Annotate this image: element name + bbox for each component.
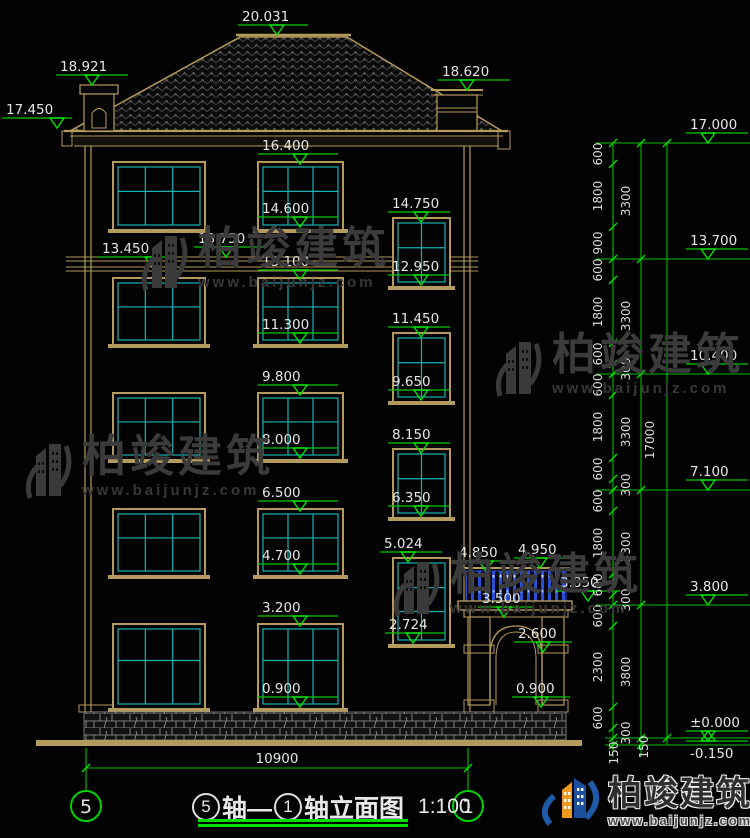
roof xyxy=(62,35,510,149)
level-marker-label: 2.724 xyxy=(389,617,428,633)
level-marker: 18.921 xyxy=(56,59,128,85)
level-marker-label: 6.500 xyxy=(262,485,301,501)
window xyxy=(388,333,455,405)
bottom-dimension: 10900 xyxy=(256,751,299,767)
level-marker: 9.800 xyxy=(258,369,338,395)
window xyxy=(108,624,210,712)
level-marker-label: 5.024 xyxy=(384,536,423,552)
dimension-label: 3800 xyxy=(619,657,633,688)
level-marker-label: 11.450 xyxy=(392,311,439,327)
level-marker: ±0.000 xyxy=(686,715,748,741)
window xyxy=(253,509,348,579)
level-marker: 17.000 xyxy=(686,117,748,143)
level-marker-label: 16.400 xyxy=(262,138,309,154)
level-marker-label: 4.700 xyxy=(262,548,301,564)
dimension-label: 1800 xyxy=(591,297,605,328)
level-marker-label: 12.950 xyxy=(392,259,439,275)
level-marker-label: 3.500 xyxy=(482,591,521,607)
window xyxy=(253,162,348,233)
dimension-label: 600 xyxy=(591,574,605,597)
dimension-label: 600 xyxy=(591,458,605,481)
level-marker: -0.150 xyxy=(686,731,748,762)
ground-line xyxy=(36,740,582,746)
window xyxy=(253,393,348,463)
title-underline-1 xyxy=(198,819,408,822)
level-marker-label: 2.600 xyxy=(518,626,557,642)
roof-dormer-block xyxy=(431,90,483,131)
dimension-label: 600 xyxy=(591,605,605,628)
level-marker-label: 13.700 xyxy=(690,233,737,249)
dimension-label: 600 xyxy=(591,259,605,282)
level-marker-label: 18.620 xyxy=(442,64,489,80)
dimension-label: 1800 xyxy=(591,412,605,443)
level-marker-label: -0.150 xyxy=(690,746,734,762)
level-marker-label: 13.750 xyxy=(198,231,245,247)
axis-bubble-left: 5 xyxy=(71,791,101,821)
level-marker: 0.900 xyxy=(512,681,570,707)
level-marker: 17.450 xyxy=(2,102,72,128)
level-marker-label: 3.800 xyxy=(690,579,729,595)
level-marker: 13.450 xyxy=(98,241,170,267)
level-marker: 10.400 xyxy=(686,348,748,374)
window xyxy=(388,218,455,290)
brand-logo-icon xyxy=(540,772,602,832)
dimension-label: 600 xyxy=(591,707,605,730)
elevation-drawing-canvas: 10900 5 1 20.03118.92117.45018.62016.400… xyxy=(0,0,750,838)
window xyxy=(108,393,210,463)
level-marker: 7.100 xyxy=(686,464,748,490)
dimension-label: 3300 xyxy=(619,417,633,448)
window xyxy=(388,558,455,648)
level-marker: 20.031 xyxy=(238,9,308,35)
level-marker-label: 9.650 xyxy=(392,374,431,390)
dimension-label: 2300 xyxy=(591,652,605,683)
stone-base xyxy=(84,712,566,740)
dimension-label: 17000 xyxy=(643,421,657,459)
dimension-label: 300 xyxy=(619,589,633,612)
level-marker: 3.200 xyxy=(258,600,338,626)
level-marker-label: ±0.000 xyxy=(690,715,740,731)
chimney xyxy=(80,85,118,131)
dimension-label: 300 xyxy=(619,358,633,381)
level-marker-label: 9.800 xyxy=(262,369,301,385)
dimension-labels: 6001800900600180060060018006006001800600… xyxy=(591,143,657,765)
level-marker-label: 4.850 xyxy=(459,545,498,561)
level-marker-label: 8.150 xyxy=(392,427,431,443)
brand-url: www.baijunjz.com xyxy=(608,813,750,828)
window xyxy=(388,449,455,521)
window xyxy=(108,509,210,579)
level-marker: 13.700 xyxy=(686,233,748,259)
level-marker-label: 3.200 xyxy=(262,600,301,616)
window xyxy=(108,162,210,233)
dimension-label: 3300 xyxy=(619,301,633,332)
level-marker: 3.800 xyxy=(686,579,748,605)
level-marker-label: 13.100 xyxy=(262,254,309,270)
level-marker: 13.750 xyxy=(194,231,266,257)
dimension-label: 300 xyxy=(619,722,633,745)
level-marker-label: 10.400 xyxy=(690,348,737,364)
window xyxy=(253,624,348,712)
brand-name: 柏竣建筑 xyxy=(608,777,750,811)
cad-elevation-svg: 10900 5 1 20.03118.92117.45018.62016.400… xyxy=(0,0,750,838)
level-marker-label: 13.450 xyxy=(102,241,149,257)
title-scale: 1:100 xyxy=(418,795,471,819)
level-marker-label: 6.350 xyxy=(392,490,431,506)
dimension-label: 600 xyxy=(591,143,605,166)
level-marker-label: 7.100 xyxy=(690,464,729,480)
axis-bubble-left-number: 5 xyxy=(80,796,92,818)
level-marker: 2.600 xyxy=(514,626,572,652)
level-marker-label: 0.900 xyxy=(516,681,555,697)
dimension-label: 600 xyxy=(591,490,605,513)
title-underline-2 xyxy=(198,824,408,827)
level-marker-label: 4.950 xyxy=(518,542,557,558)
level-marker-label: 14.750 xyxy=(392,196,439,212)
level-marker-label: 11.300 xyxy=(262,317,309,333)
dimension-label: 900 xyxy=(591,232,605,255)
dimension-label: 150 xyxy=(637,736,651,759)
level-marker-label: 18.921 xyxy=(60,59,107,75)
dimension-label: 300 xyxy=(619,474,633,497)
level-marker-label: 17.000 xyxy=(690,117,737,133)
dimension-label: 600 xyxy=(591,374,605,397)
level-marker-label: 0.900 xyxy=(262,681,301,697)
level-marker: 18.620 xyxy=(438,64,510,90)
level-marker: 6.500 xyxy=(258,485,338,511)
brand-logo: 柏竣建筑 www.baijunjz.com xyxy=(540,772,750,832)
level-marker: 4.950 xyxy=(514,542,570,568)
level-marker-label: 14.600 xyxy=(262,201,309,217)
title-axis-start-bubble: 5 xyxy=(192,793,220,821)
level-marker-label: 8.000 xyxy=(262,432,301,448)
level-marker-label: 17.450 xyxy=(6,102,53,118)
dimension-label: 3300 xyxy=(619,186,633,217)
level-marker-label: 20.031 xyxy=(242,9,289,25)
window xyxy=(108,278,210,348)
dimension-label: 1800 xyxy=(591,528,605,559)
dimension-label: 3300 xyxy=(619,532,633,563)
dimension-label: 600 xyxy=(591,343,605,366)
title-axis-end-bubble: 1 xyxy=(274,793,302,821)
window xyxy=(253,278,348,348)
dimension-label: 1800 xyxy=(591,181,605,212)
